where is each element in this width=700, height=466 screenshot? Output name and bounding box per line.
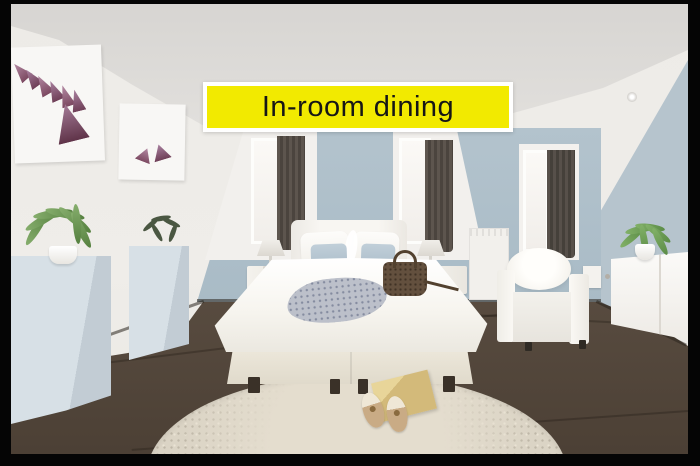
curtain-right xyxy=(425,140,453,252)
pedestal-large xyxy=(11,256,111,424)
framed-artwork-left xyxy=(11,44,105,163)
armchair-foot xyxy=(525,342,532,351)
plant-leaf xyxy=(72,204,83,244)
plant-leaf xyxy=(167,222,179,243)
curtain-far-right xyxy=(547,150,575,258)
caption-banner-background: In-room dining xyxy=(207,86,509,128)
wall-outlet xyxy=(605,274,610,279)
artwork-petal xyxy=(135,145,155,164)
dark-plant xyxy=(137,214,187,250)
armchair-arm-right xyxy=(569,274,589,344)
artwork-petal xyxy=(150,142,172,163)
bed-foot xyxy=(443,376,455,392)
window-far-right xyxy=(523,150,549,252)
plant-pot-left xyxy=(49,246,77,264)
bed-foot xyxy=(358,379,368,394)
armchair-foot xyxy=(579,340,586,349)
ceiling-spotlight xyxy=(627,92,637,102)
framed-artwork-right xyxy=(118,103,185,180)
pedestal-small xyxy=(129,246,189,360)
sideboard-door-seam xyxy=(659,252,661,340)
fur-throw xyxy=(507,248,571,290)
shoe-buckle xyxy=(369,405,377,413)
plant-leaf xyxy=(150,223,164,243)
handbag xyxy=(383,262,427,296)
caption-banner: In-room dining xyxy=(203,82,513,132)
shoe-buckle xyxy=(393,410,400,417)
plant-leaf xyxy=(161,216,181,229)
caption-text: In-room dining xyxy=(262,91,454,124)
handbag-handle xyxy=(393,250,417,268)
bed-foot xyxy=(248,377,260,393)
armchair xyxy=(497,244,589,350)
bed-foot xyxy=(330,379,340,394)
bedroom-photo[interactable]: In-room dining xyxy=(11,4,688,454)
armchair-seat xyxy=(513,292,571,342)
